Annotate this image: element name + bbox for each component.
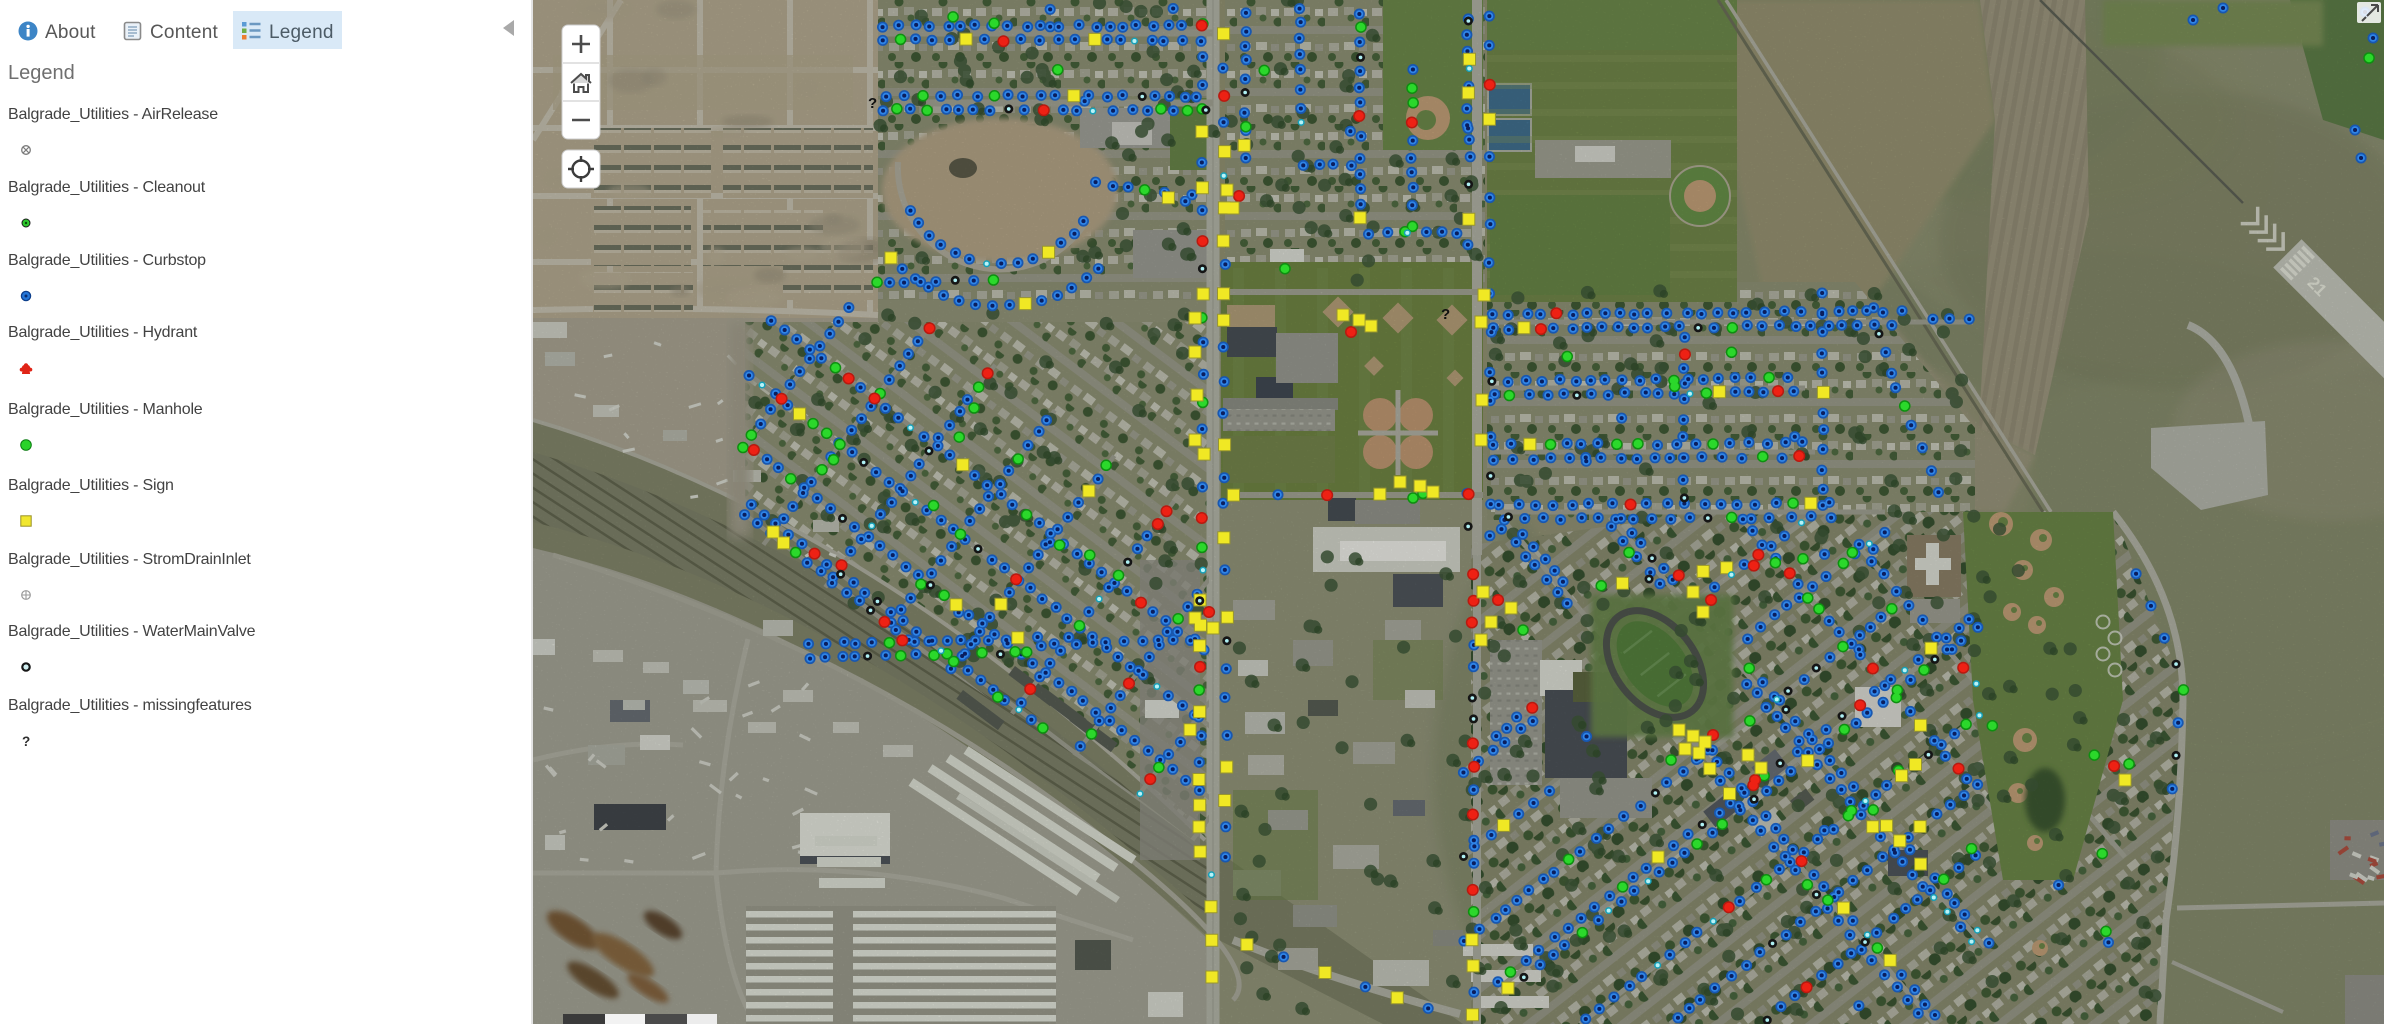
svg-text:?: ? <box>22 734 30 749</box>
svg-text:?: ? <box>1441 306 1450 323</box>
svg-text:?: ? <box>868 95 877 112</box>
